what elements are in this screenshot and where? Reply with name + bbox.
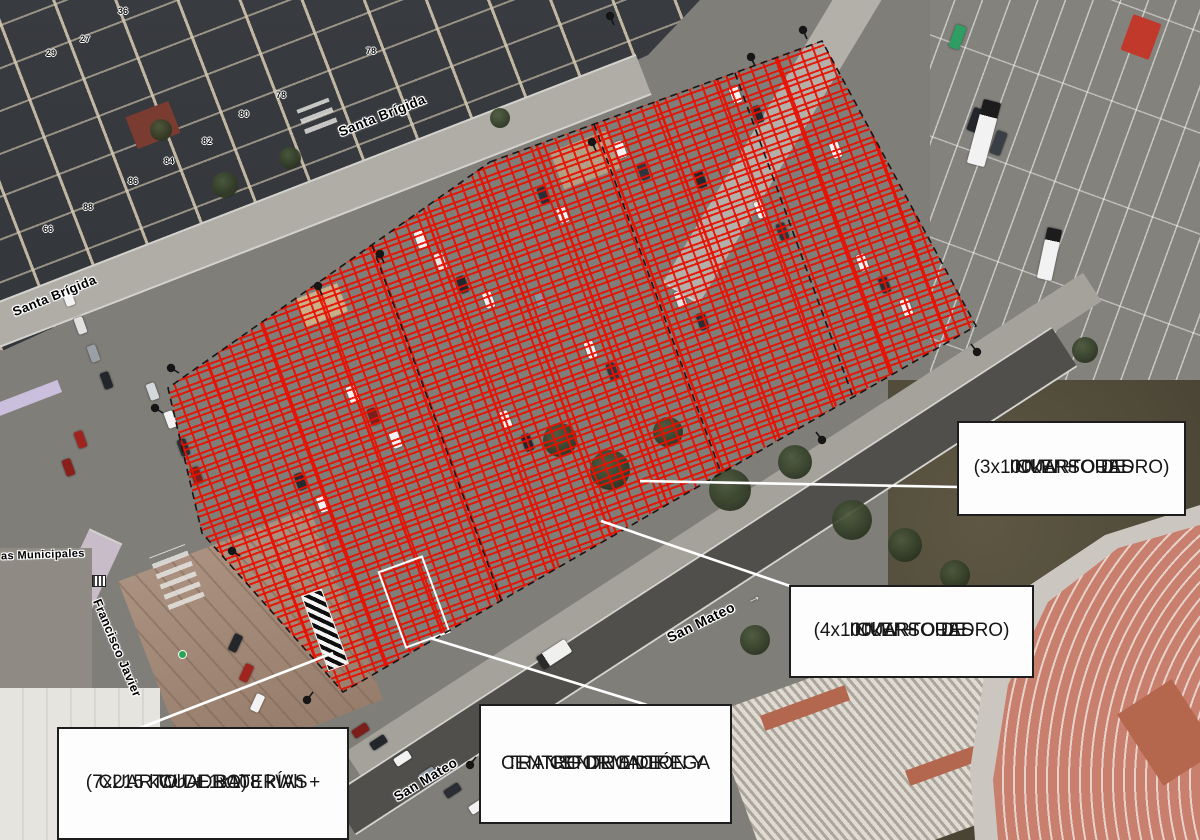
callout-line: CENTRO DE ENTREGA: [501, 751, 710, 778]
house-number: 82: [202, 136, 212, 146]
house-number: 78: [366, 46, 376, 56]
leader-centro: [430, 638, 647, 705]
house-number: 66: [43, 224, 53, 234]
callout-line: CUADRO): [159, 770, 248, 797]
callout-centro-transformacion: CENTRO DE TRANSFORMACIÓN Y CENTRO DE ENT…: [479, 704, 732, 824]
house-number: 80: [239, 109, 249, 119]
house-number: 78: [276, 90, 286, 100]
house-number: 84: [164, 156, 174, 166]
house-number: 29: [46, 48, 56, 58]
house-number: 36: [118, 6, 128, 16]
map-figure: Santa Brígida Santa Brígida San Mateo Sa…: [0, 0, 1200, 840]
municipal-building-icon: [92, 575, 106, 587]
house-number: 88: [83, 202, 93, 212]
leader-inversores-3: [640, 481, 958, 487]
callout-line: (4x100kW + CUADRO): [814, 618, 1010, 645]
house-number: 86: [128, 176, 138, 186]
callout-inversores-4x100: CUARTO DE INVERSORES (4x100kW + CUADRO): [789, 585, 1034, 678]
callout-inversores-3x100: CUARTO DE INVERSORES (3x100kW + CUADRO): [957, 421, 1186, 516]
callout-line: (3x100kW + CUADRO): [974, 455, 1170, 482]
leader-baterias: [140, 653, 333, 728]
leader-inversores-4: [601, 521, 790, 586]
callout-cuarto-baterias: CUARTO DE BATERÍAS (7x215 kWh + 1x108 kW…: [57, 727, 349, 840]
house-number: 27: [80, 34, 90, 44]
